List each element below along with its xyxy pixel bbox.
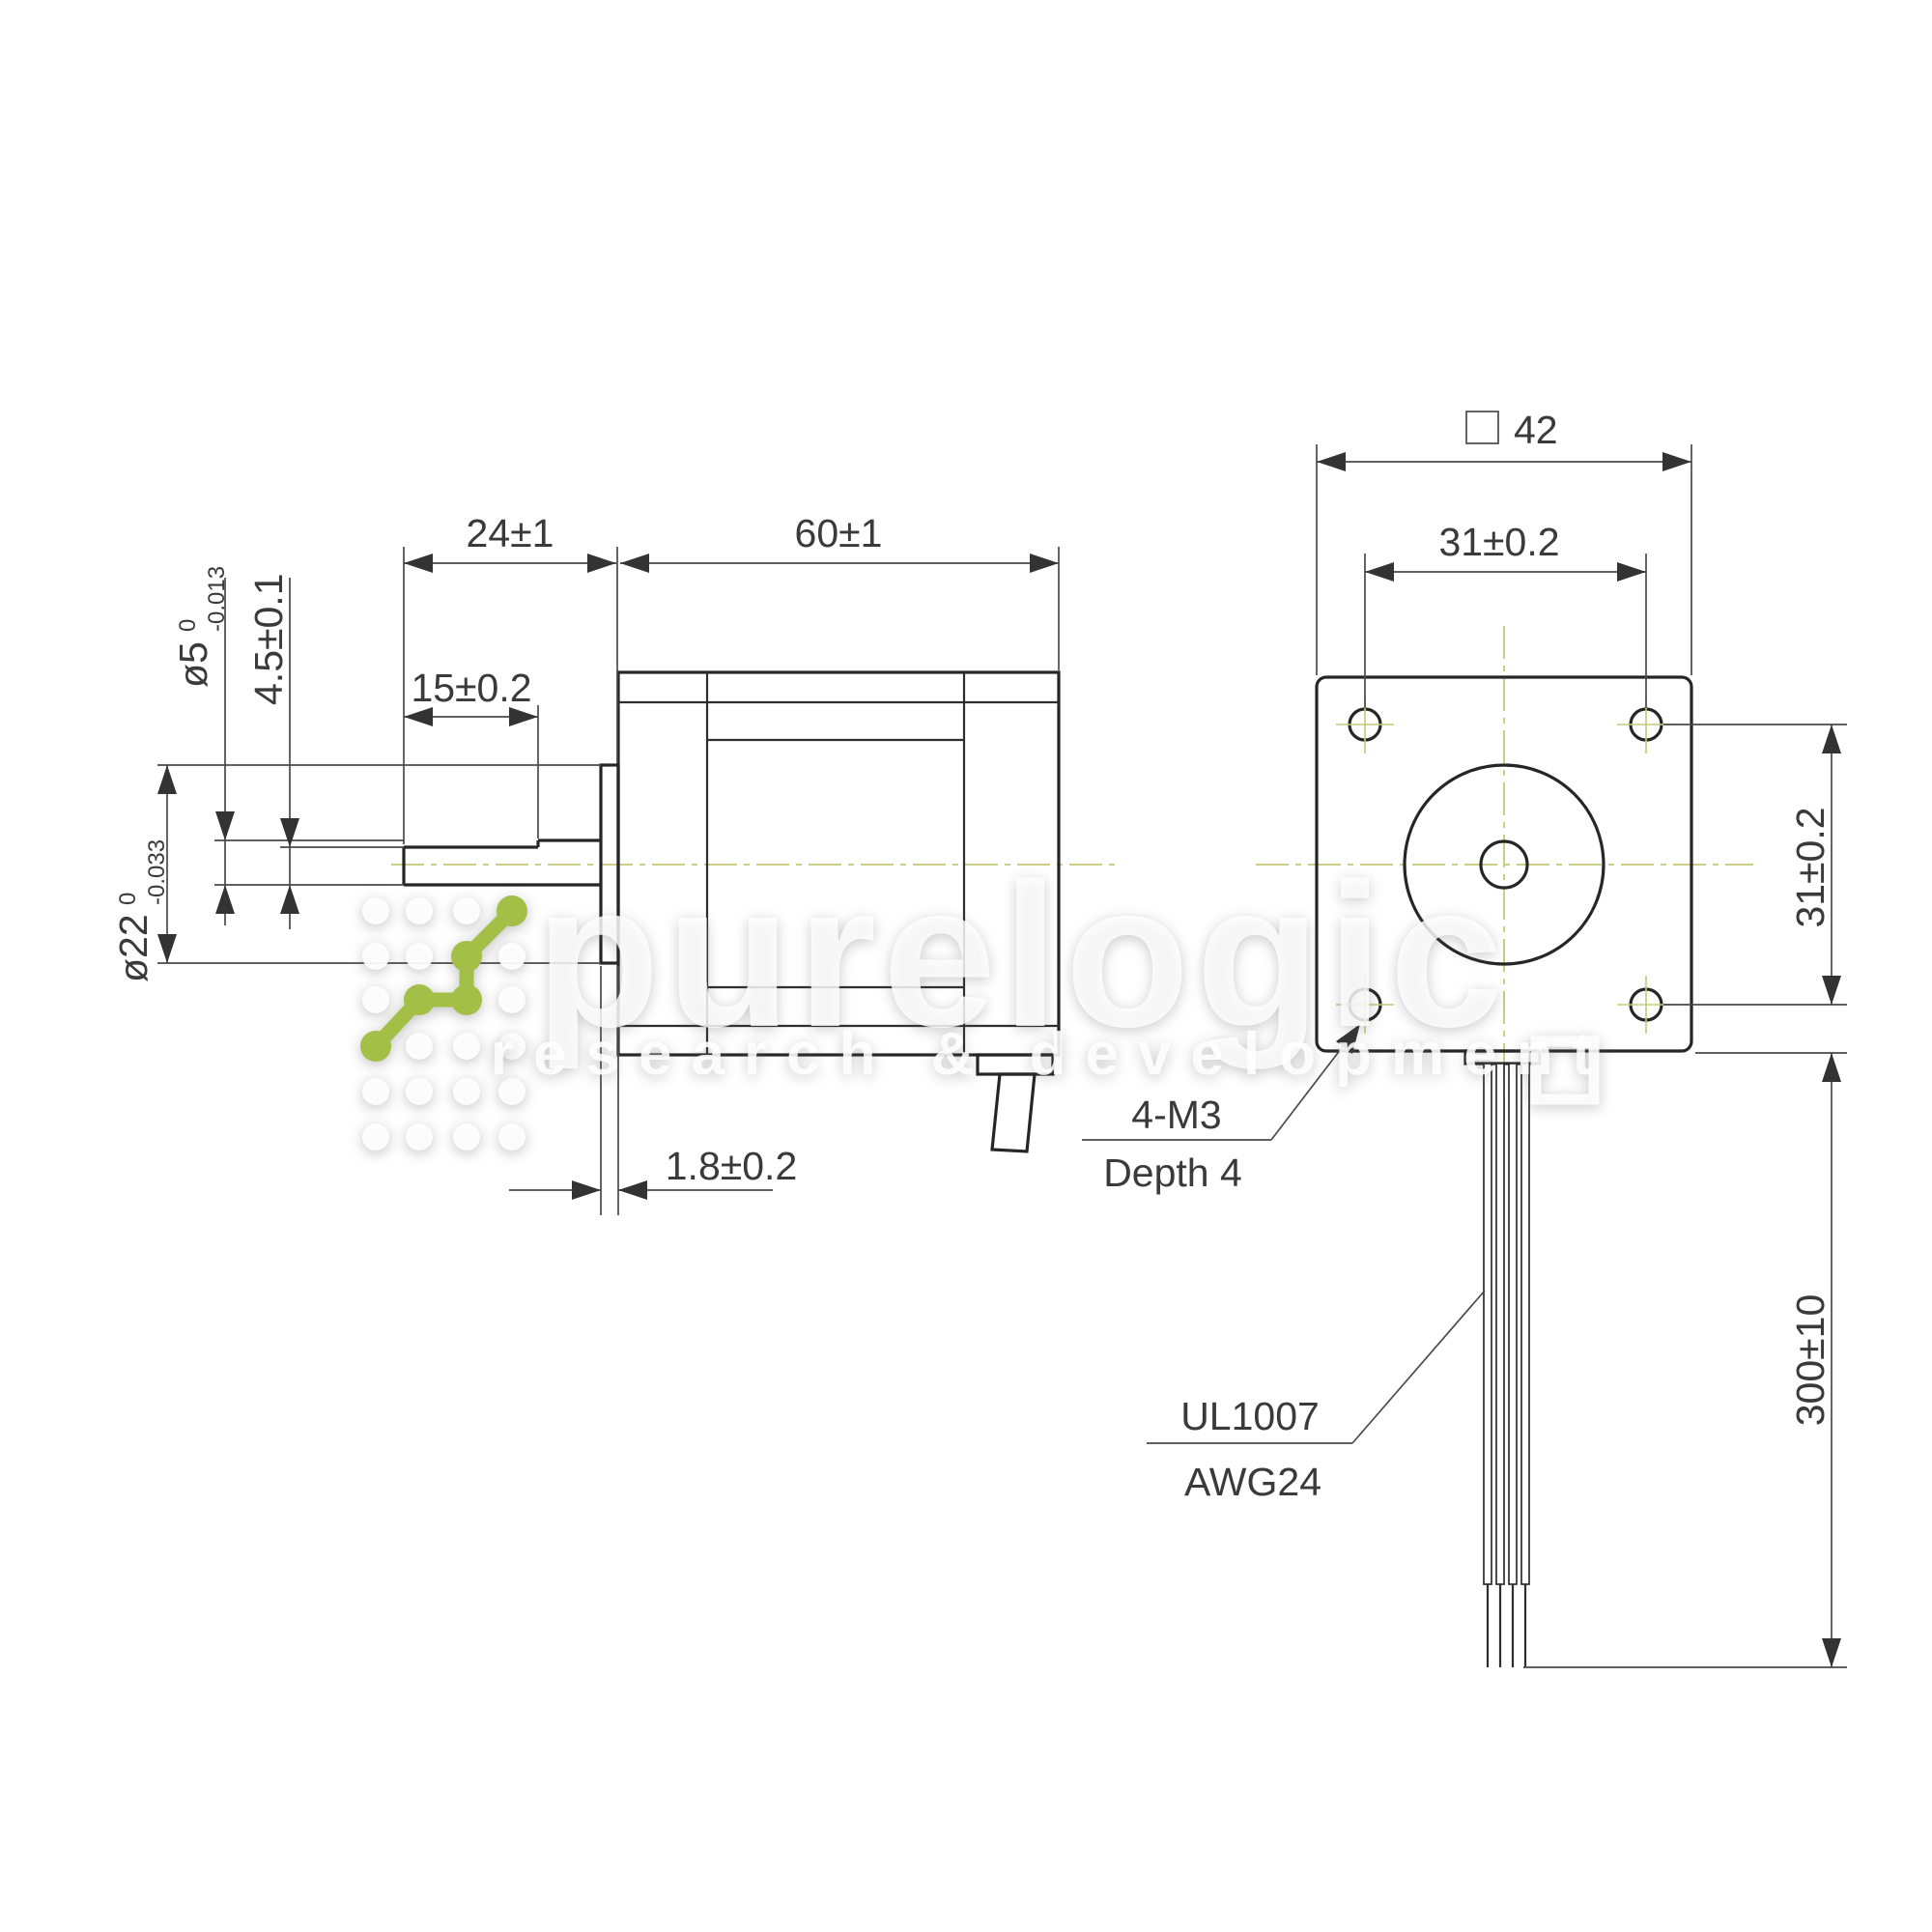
dimension-flat-length: 15±0.2: [404, 666, 538, 838]
label-dim-boss-height: 1.8±0.2: [666, 1144, 798, 1188]
label-dim-shaft-dia-tol-lower: -0.013: [204, 566, 230, 632]
label-dim-15: 15±0.2: [411, 666, 531, 710]
label-dim-shaft-dia-tol-upper: 0: [175, 619, 201, 632]
square-symbol-icon: [1466, 412, 1498, 443]
lead-wires: [1465, 1051, 1540, 1667]
dimension-body-length: 60±1: [620, 511, 1059, 670]
label-note-depth4: Depth 4: [1103, 1151, 1242, 1195]
label-dim-square: 42: [1514, 408, 1558, 452]
label-dim-31-vertical: 31±0.2: [1788, 807, 1833, 927]
watermark: purelogic research & development: [360, 840, 1611, 1151]
dimension-flat-height: 4.5±0.1: [246, 574, 404, 930]
label-dim-300: 300±10: [1788, 1294, 1833, 1427]
label-note-awg24: AWG24: [1184, 1460, 1321, 1504]
label-dim-shaft-dia: ø5: [171, 641, 215, 688]
dimension-hole-spacing-horizontal: 31±0.2: [1365, 520, 1646, 708]
technical-drawing: 24±1 60±1 15±0.2 ø5 0 -: [0, 0, 1932, 1932]
label-dim-24: 24±1: [467, 511, 554, 555]
dimension-lead-length: 300±10: [1523, 1053, 1847, 1667]
drawing-page: 24±1 60±1 15±0.2 ø5 0 -: [0, 0, 1932, 1932]
dimension-boss-diameter: ø22 0 -0.033: [111, 765, 601, 982]
label-note-4m3: 4-M3: [1131, 1093, 1221, 1137]
label-dim-boss-dia: ø22: [111, 914, 156, 982]
label-dim-60: 60±1: [795, 511, 883, 555]
watermark-tagline: research & development: [491, 1021, 1611, 1088]
label-dim-flat-height: 4.5±0.1: [246, 574, 291, 706]
note-lead-wire: UL1007 AWG24: [1147, 1291, 1485, 1504]
label-dim-boss-dia-tol-upper: 0: [115, 893, 141, 905]
label-dim-31-horizontal: 31±0.2: [1438, 520, 1559, 564]
label-dim-boss-dia-tol-lower: -0.033: [144, 839, 170, 905]
label-note-ul1007: UL1007: [1180, 1394, 1320, 1438]
